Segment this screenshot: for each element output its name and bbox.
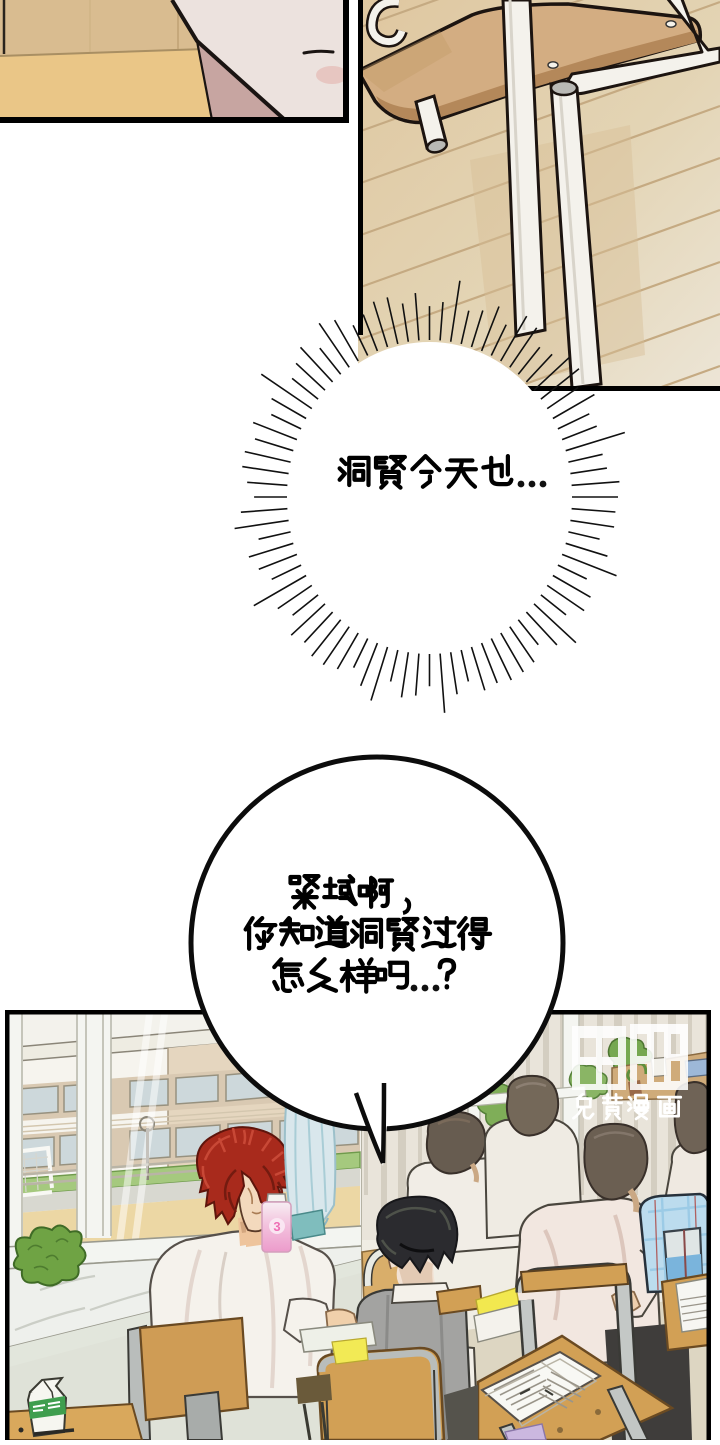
svg-text:3: 3 [273, 1219, 280, 1234]
